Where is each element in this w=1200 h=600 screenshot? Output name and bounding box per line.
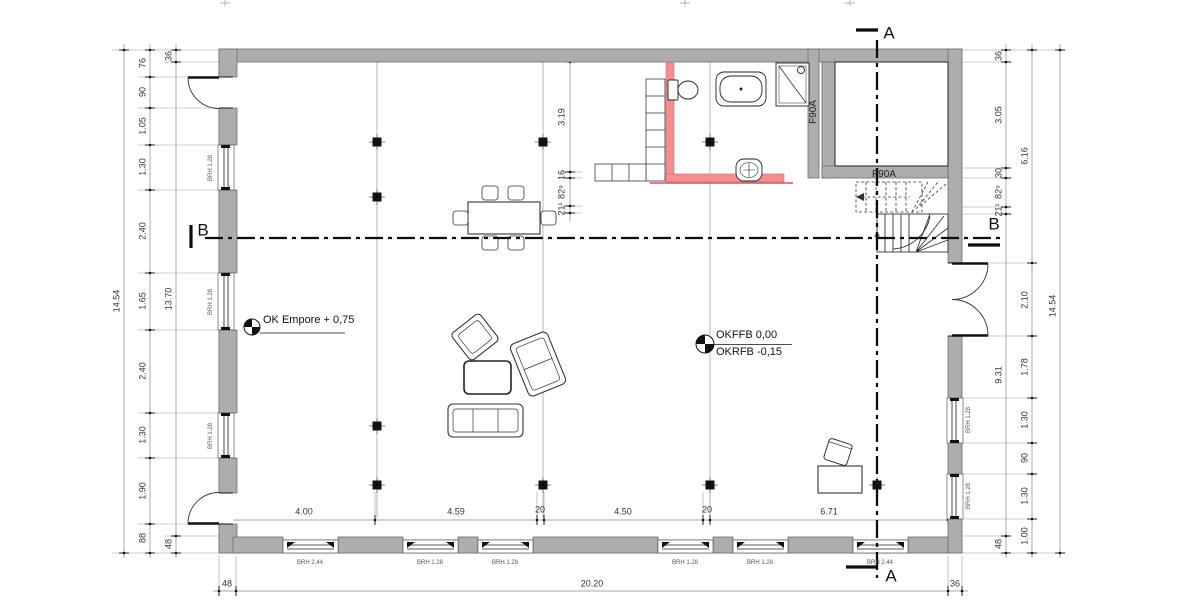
dim-right-outer: 14.54 bbox=[1049, 295, 1058, 318]
dim-left-chain: 1.90 bbox=[139, 482, 148, 500]
section-lines bbox=[191, 30, 1000, 578]
dim-right-inner: 9.31 bbox=[995, 366, 1004, 384]
window-label: BRH 2.44 bbox=[867, 560, 893, 566]
window-left-1 bbox=[218, 145, 234, 190]
dim-left-chain: 1.65 bbox=[139, 292, 148, 310]
dim-bottom-inner: 20 bbox=[535, 506, 545, 515]
window-label: BRH 1.28 bbox=[747, 560, 773, 566]
dim-bottom-outer: 36 bbox=[950, 580, 960, 589]
dim-right-inner: 48 bbox=[995, 539, 1004, 549]
dim-left-wall: 36 bbox=[165, 51, 174, 61]
dim-right-mid: 1.78 bbox=[1021, 358, 1030, 376]
dim-bottom-inner: 4.50 bbox=[614, 508, 632, 517]
dim-right-mid: 1.00 bbox=[1021, 527, 1030, 545]
dim-bottom-inner: 4.00 bbox=[295, 508, 313, 517]
floor-plan: 14.54 76 90 1.05 1.30 2.40 1.65 2.40 1.3… bbox=[0, 0, 1200, 600]
window-label: BRH 1.28 bbox=[492, 560, 518, 566]
dim-right-mid: 1.30 bbox=[1021, 411, 1030, 429]
window-right-2 bbox=[947, 474, 963, 519]
level-label-rfb: OKRFB -0,15 bbox=[716, 347, 782, 358]
dim-bottom-inner: 6.71 bbox=[820, 508, 838, 517]
dim-bottom-outer: 48 bbox=[222, 580, 232, 589]
dim-interior: 16 bbox=[558, 170, 567, 180]
bathtub bbox=[716, 72, 766, 106]
dim-right-mid: 1.30 bbox=[1021, 487, 1030, 505]
coffee-table bbox=[464, 361, 511, 394]
kitchen-cabinets bbox=[595, 79, 665, 181]
furniture bbox=[448, 186, 862, 493]
dim-left-chain: 1.30 bbox=[139, 158, 148, 176]
dim-right-mid: 2.10 bbox=[1021, 291, 1030, 309]
dim-left-chain: 1.30 bbox=[139, 426, 148, 444]
window-label: BRH 1.28 bbox=[208, 289, 214, 315]
window-left-3 bbox=[218, 413, 234, 458]
fire-rating-label: F90A bbox=[872, 170, 896, 180]
loveseat bbox=[509, 331, 567, 398]
window-left-2 bbox=[218, 273, 234, 330]
window-right-1 bbox=[947, 398, 963, 443]
dim-left-wall: 13.70 bbox=[165, 288, 174, 311]
dim-right-inner: 30 bbox=[995, 168, 1004, 178]
dim-left-chain: 1.05 bbox=[139, 117, 148, 135]
dim-left-chain: 2.40 bbox=[139, 222, 148, 240]
level-label-empore: OK Empore + 0,75 bbox=[263, 315, 354, 326]
armchair bbox=[450, 313, 499, 362]
dim-right-mid: 90 bbox=[1021, 453, 1030, 463]
dim-bottom-inner: 4.59 bbox=[447, 508, 465, 517]
window-label: BRH 1.28 bbox=[208, 423, 214, 449]
section-label-a-bottom: A bbox=[885, 568, 896, 585]
window-label: BRH 1.28 bbox=[966, 407, 972, 433]
sink bbox=[736, 159, 762, 181]
dim-right-mid: 6.16 bbox=[1021, 147, 1030, 165]
dim-bottom-outer: 20.20 bbox=[581, 580, 604, 589]
dim-left-chain: 2.40 bbox=[139, 362, 148, 380]
crop-ticks bbox=[220, 0, 855, 6]
window-label: BRH 1.28 bbox=[208, 155, 214, 181]
sofa bbox=[448, 404, 523, 437]
storage-room-outline bbox=[835, 62, 948, 166]
dim-interior: 3.19 bbox=[558, 108, 567, 126]
section-label-b-left: B bbox=[197, 222, 208, 239]
window-label: BRH 1.28 bbox=[966, 483, 972, 509]
fire-rating-label: F90A bbox=[809, 100, 819, 124]
desk bbox=[818, 466, 862, 493]
dim-left-chain: 88 bbox=[139, 533, 148, 543]
level-label-ffb: OKFFB 0,00 bbox=[716, 330, 777, 341]
staircase bbox=[856, 182, 948, 252]
window-label: BRH 1.28 bbox=[672, 560, 698, 566]
dim-left-chain: 76 bbox=[139, 58, 148, 68]
section-label-a-top: A bbox=[883, 25, 894, 42]
dining-set bbox=[453, 186, 556, 250]
dim-right-inner: 36 bbox=[995, 51, 1004, 61]
dim-left-wall: 48 bbox=[165, 539, 174, 549]
dim-right-inner: 82⁹ bbox=[995, 185, 1004, 199]
dim-interior: 21¹ bbox=[558, 202, 567, 215]
dim-bottom-inner: 20 bbox=[702, 506, 712, 515]
toilet bbox=[668, 80, 698, 100]
desk-chair bbox=[823, 438, 853, 466]
door-swings bbox=[188, 78, 988, 524]
dim-right-inner: 3.05 bbox=[995, 106, 1004, 124]
columns bbox=[369, 134, 885, 493]
window-label: BRH 1.28 bbox=[417, 560, 443, 566]
dim-interior: 82⁹ bbox=[558, 185, 567, 199]
dim-left-chain: 90 bbox=[139, 87, 148, 97]
section-label-b-right: B bbox=[988, 216, 999, 233]
shower bbox=[776, 63, 809, 106]
dim-left-outer: 14.54 bbox=[113, 290, 122, 313]
bathroom-fixtures bbox=[668, 63, 809, 181]
window-label: BRH 2.44 bbox=[297, 560, 323, 566]
